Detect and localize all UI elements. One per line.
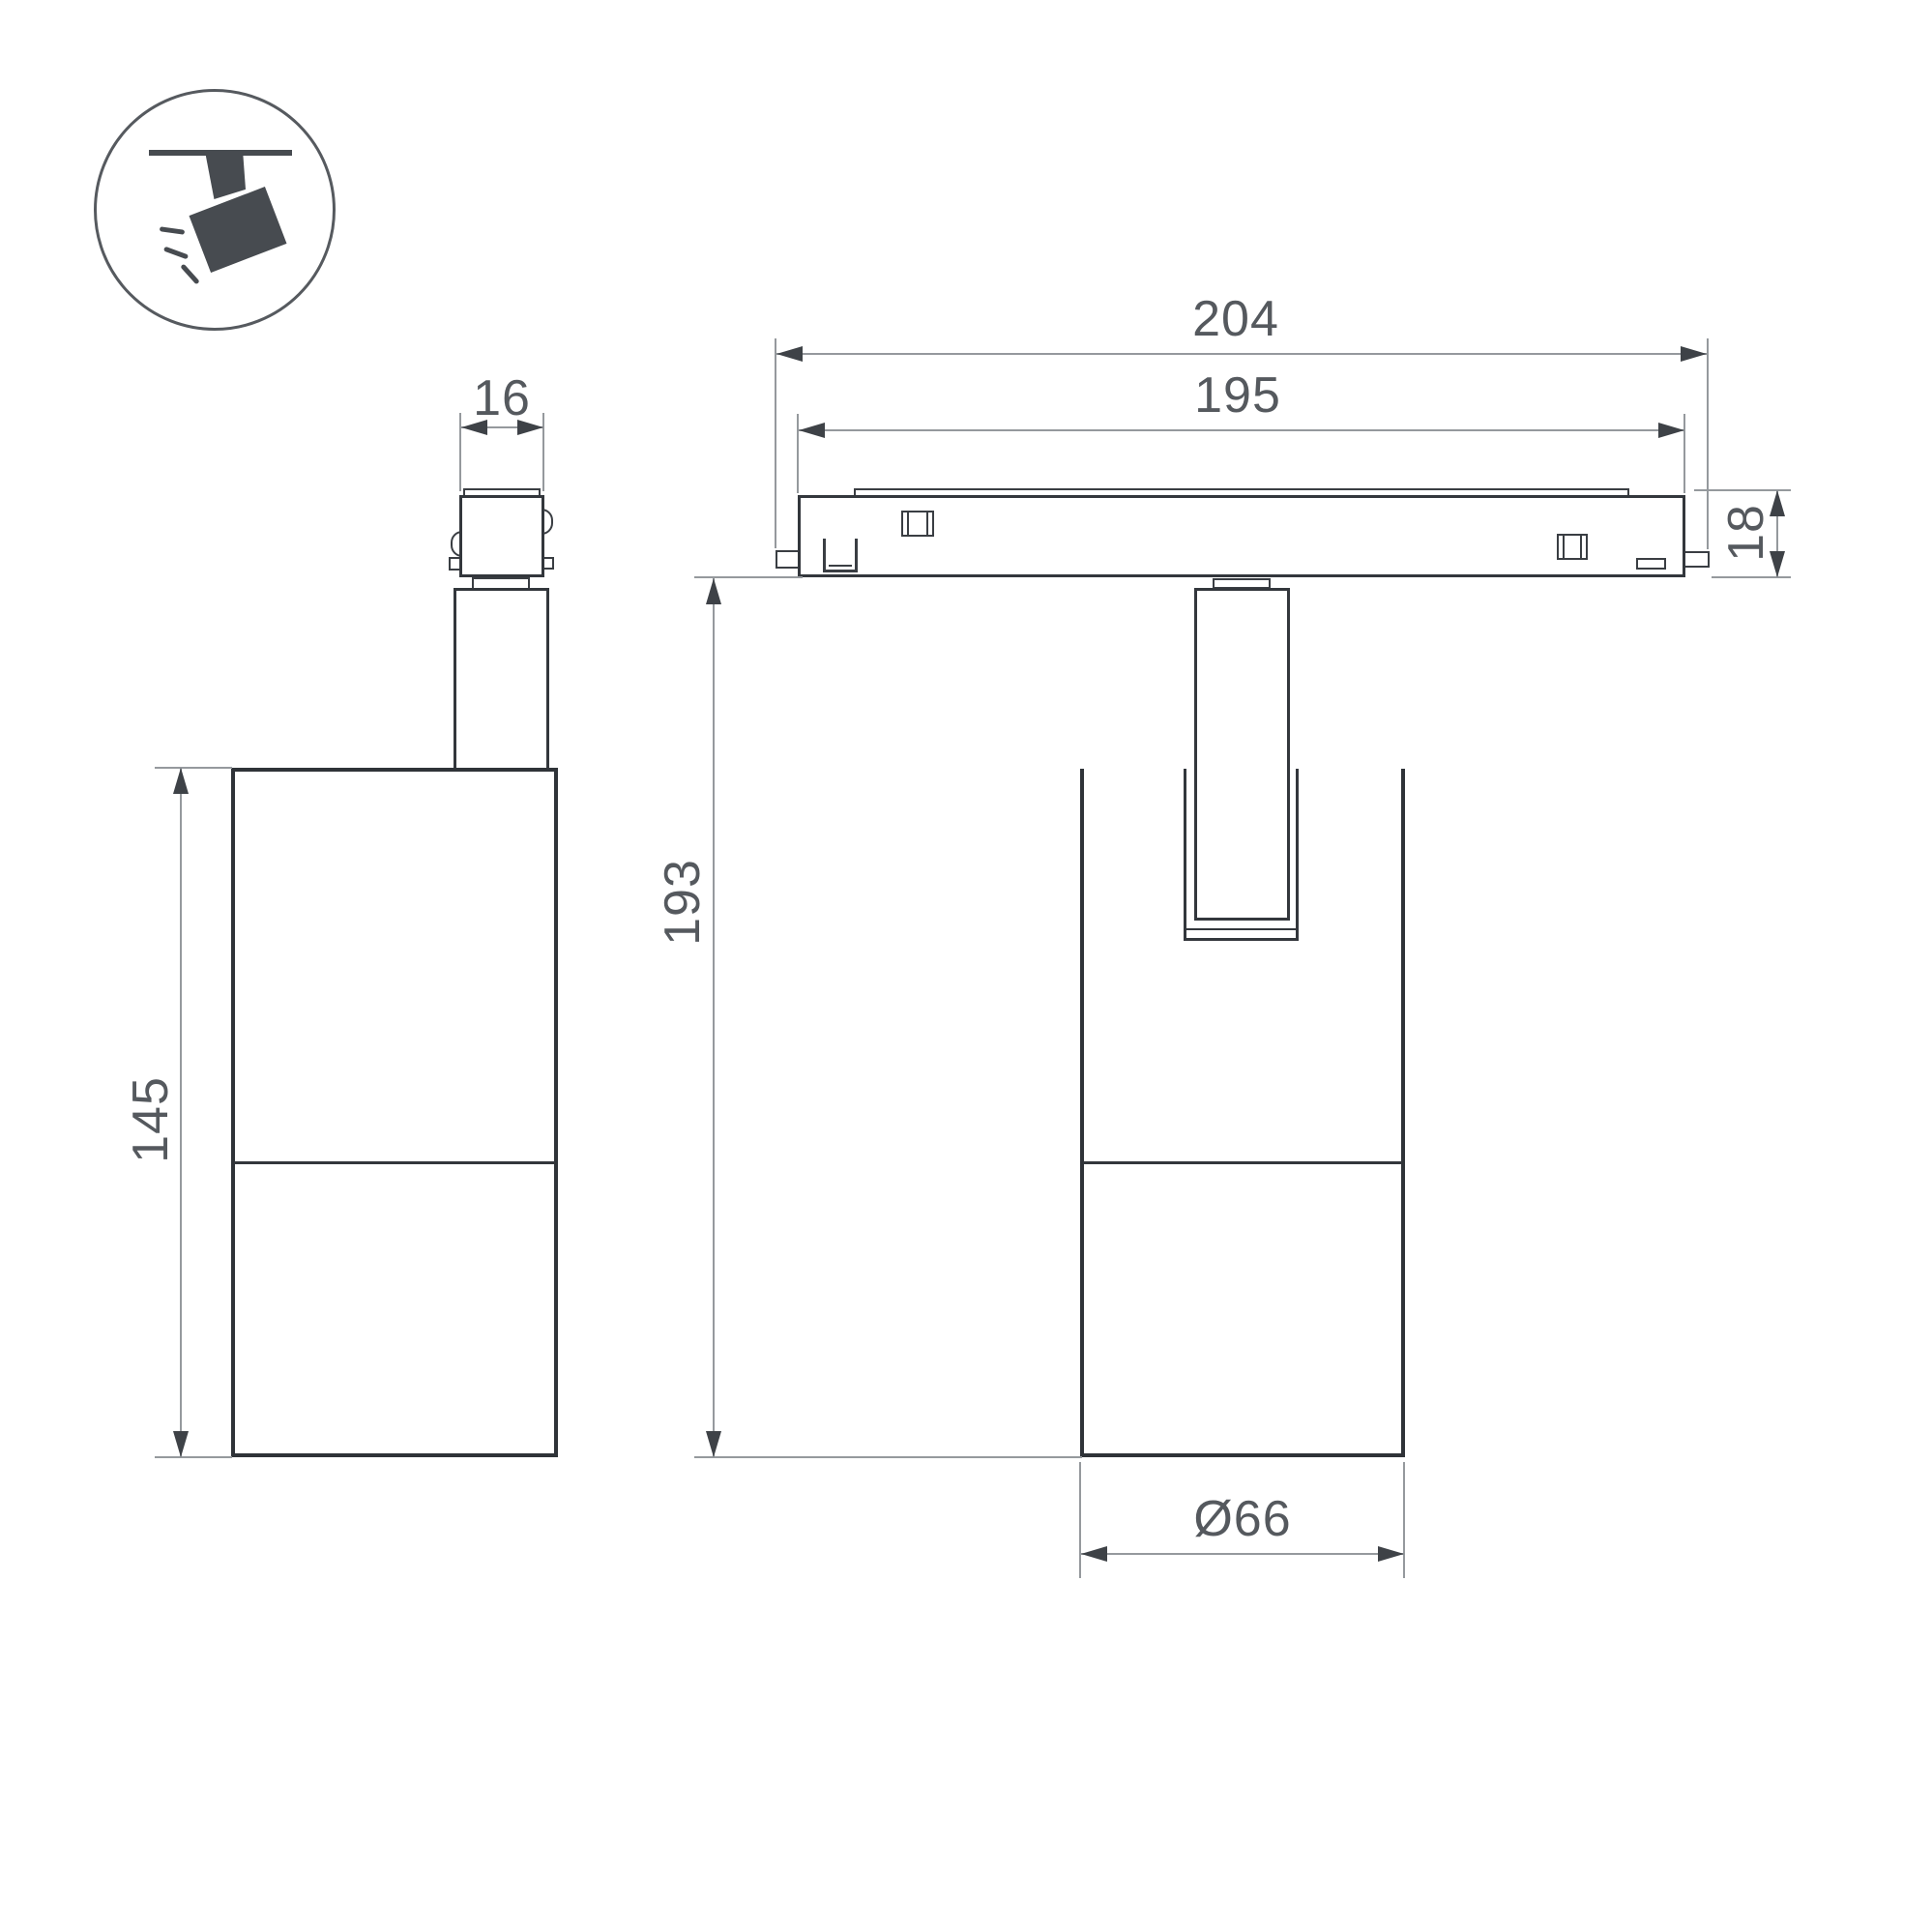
side-body xyxy=(231,768,558,1457)
dim193-ext-bottom xyxy=(694,1456,1082,1458)
dim195-arrow-left xyxy=(799,423,825,438)
side-adapter-block xyxy=(459,495,544,577)
front-rail-right-window xyxy=(1557,534,1588,560)
dim204-ext-left xyxy=(775,338,776,548)
dim16-label: 16 xyxy=(473,369,531,427)
front-stem xyxy=(1194,588,1290,921)
dim193-arrow-bottom xyxy=(706,1431,721,1457)
dim66-label: Ø66 xyxy=(1193,1490,1291,1548)
dim66-arrow-right xyxy=(1378,1546,1404,1562)
dim66-line xyxy=(1081,1553,1404,1555)
side-body-divider xyxy=(234,1161,555,1164)
dim145-line xyxy=(180,768,182,1457)
dim193-label: 193 xyxy=(654,859,712,946)
dim204-ext-right xyxy=(1707,338,1709,549)
dim195-arrow-right xyxy=(1658,423,1684,438)
dim195-line xyxy=(799,429,1684,431)
dim66-arrow-left xyxy=(1081,1546,1107,1562)
dim193-arrow-top xyxy=(706,578,721,604)
dim145-label: 145 xyxy=(122,1076,180,1163)
dim145-ext-bottom xyxy=(155,1456,232,1458)
front-rail-left-tab xyxy=(776,550,800,569)
dim145-arrow-bottom xyxy=(173,1431,189,1457)
front-body-divider xyxy=(1083,1161,1402,1164)
dim193-line xyxy=(713,578,715,1457)
dim204-line xyxy=(776,353,1707,355)
dim18-label: 18 xyxy=(1717,504,1775,562)
front-rail-slot xyxy=(1636,558,1666,570)
dim145-arrow-top xyxy=(173,768,189,794)
dim204-arrow-left xyxy=(776,346,803,362)
dim204-arrow-right xyxy=(1681,346,1707,362)
front-rail-u-clip xyxy=(823,539,858,572)
dim195-label: 195 xyxy=(1194,366,1281,424)
side-stem xyxy=(454,588,549,772)
dimensional-drawing-sheet: 16 145 204 195 1 xyxy=(0,0,1932,1932)
front-rail-right-tab xyxy=(1683,551,1710,568)
dim204-label: 204 xyxy=(1192,290,1279,348)
dim145-ext-top xyxy=(155,767,232,769)
front-rail-square-window xyxy=(901,511,934,537)
